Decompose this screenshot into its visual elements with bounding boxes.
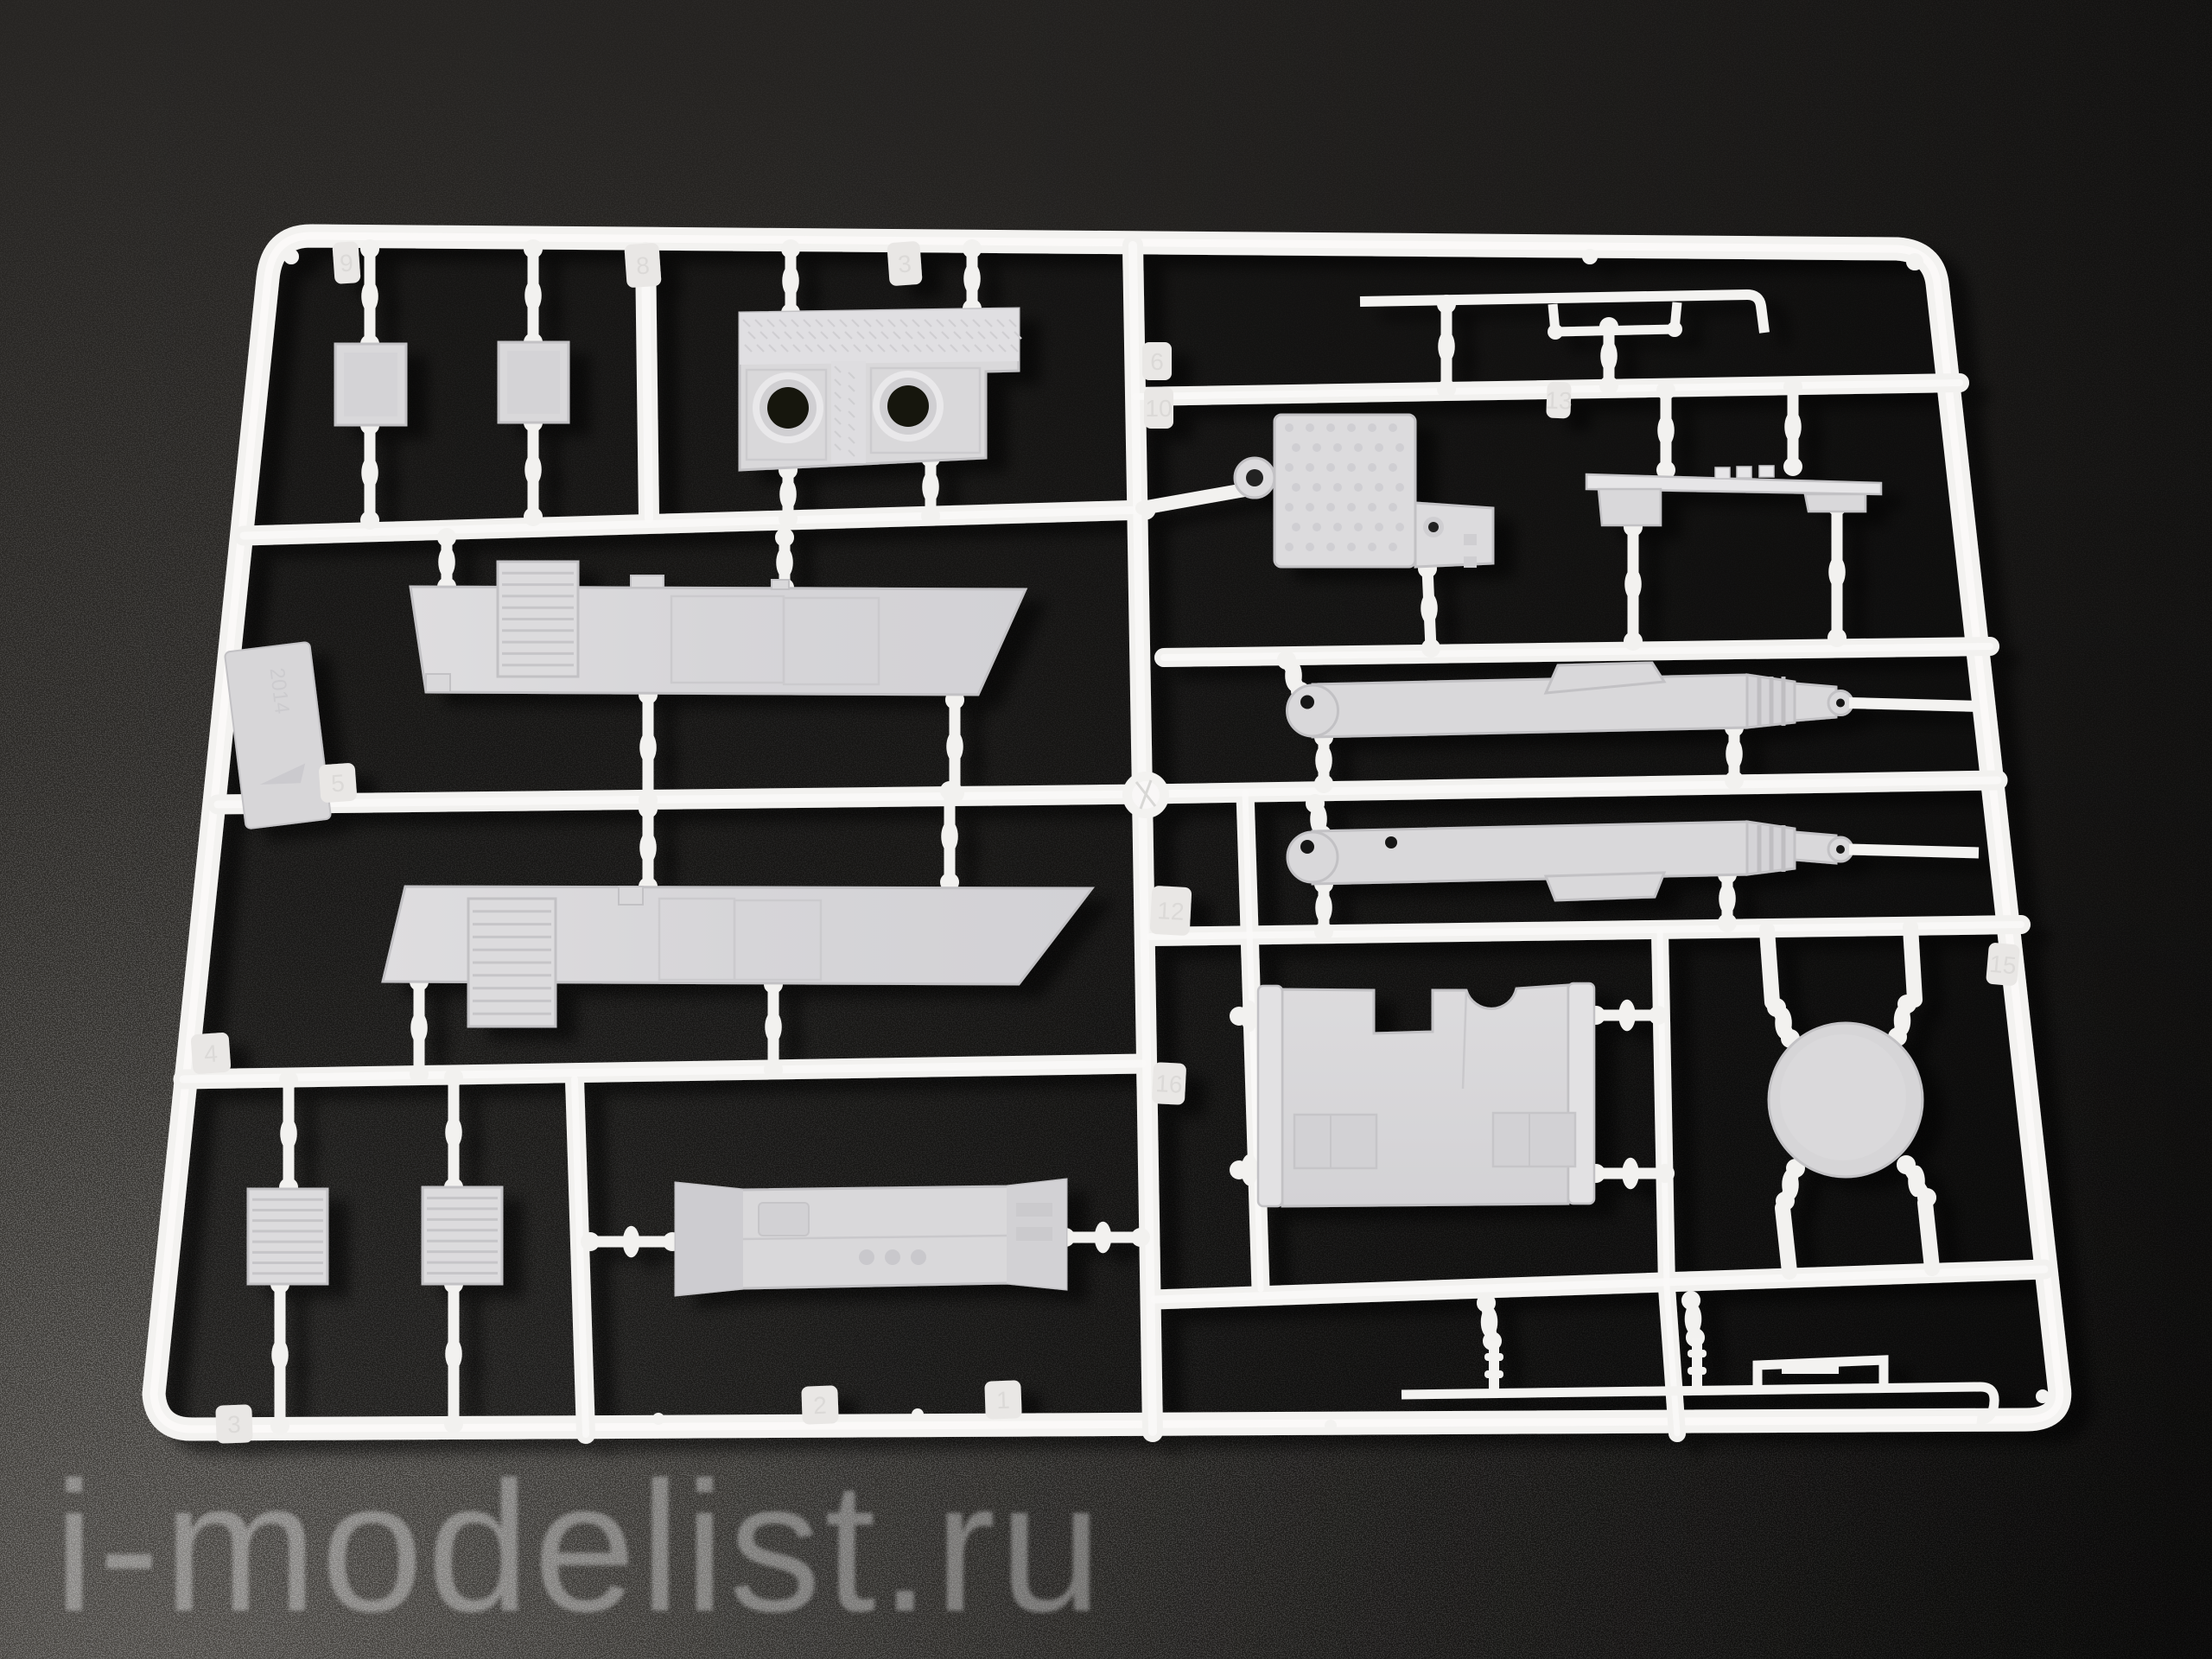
svg-text:13: 13	[1545, 386, 1573, 414]
svg-text:1: 1	[996, 1387, 1011, 1414]
svg-text:10: 10	[1145, 395, 1172, 422]
svg-text:16: 16	[1155, 1070, 1184, 1098]
svg-text:6: 6	[1150, 348, 1164, 375]
svg-text:8: 8	[635, 251, 651, 279]
svg-text:3: 3	[227, 1411, 242, 1439]
svg-text:9: 9	[339, 249, 354, 276]
svg-text:4: 4	[203, 1039, 219, 1067]
svg-text:3: 3	[897, 250, 912, 277]
svg-text:2: 2	[813, 1392, 828, 1420]
svg-text:12: 12	[1157, 897, 1185, 925]
svg-text:i-modelist.ru: i-modelist.ru	[54, 1444, 1105, 1650]
svg-text:15: 15	[1988, 950, 2018, 980]
svg-text:5: 5	[330, 769, 346, 797]
